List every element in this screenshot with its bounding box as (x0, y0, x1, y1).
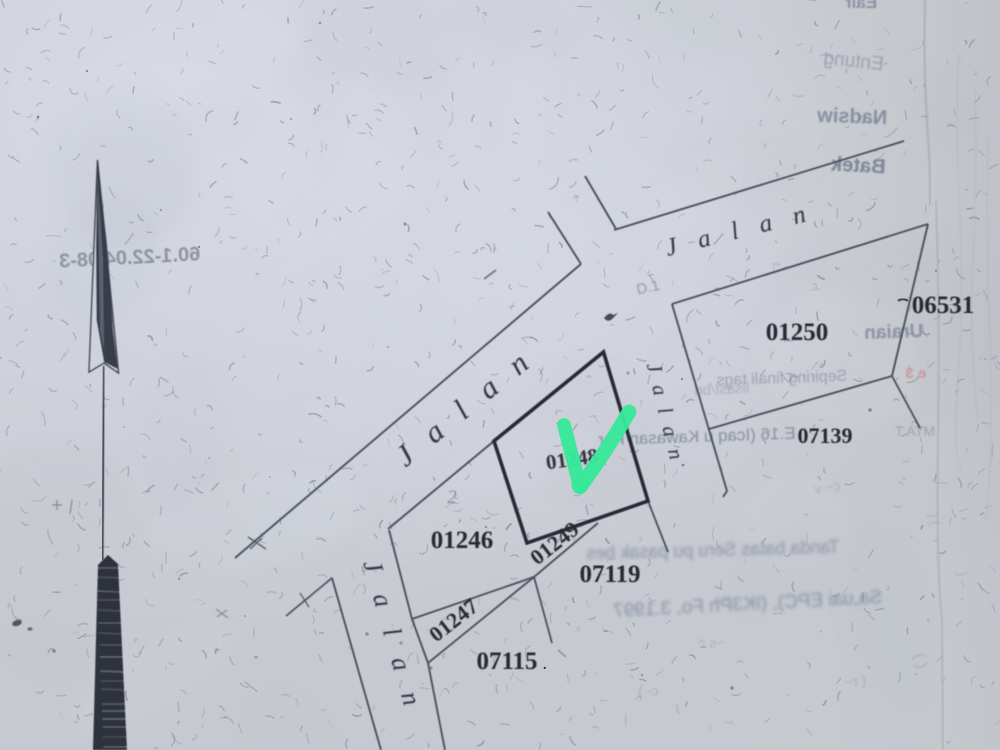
svg-text:2: 2 (447, 487, 457, 508)
svg-text:.: . (543, 658, 547, 673)
svg-text:01246: 01246 (431, 527, 494, 554)
svg-text:~ (: ~ ( (954, 571, 970, 588)
svg-text:Eair: Eair (845, 0, 878, 12)
svg-text:( r~: ( r~ (844, 672, 867, 690)
svg-text:MTA T: MTA T (895, 423, 935, 439)
svg-text:07119: 07119 (579, 561, 640, 588)
svg-text:07139: 07139 (798, 423, 853, 448)
svg-text:c- ): c- ) (638, 681, 659, 698)
svg-text:e 3: e 3 (906, 365, 927, 382)
svg-text:07115: 07115 (476, 648, 537, 675)
svg-text:06531: 06531 (912, 292, 975, 319)
svg-text:Batek: Batek (830, 154, 886, 179)
svg-text:~s ^: ~s ^ (698, 634, 725, 652)
svg-text:01250: 01250 (766, 319, 829, 346)
svg-text:lisast brl: lisast brl (694, 380, 750, 400)
svg-text:Nadsiw: Nadsiw (816, 105, 887, 129)
svg-text:Uraian: Uraian (864, 321, 924, 344)
